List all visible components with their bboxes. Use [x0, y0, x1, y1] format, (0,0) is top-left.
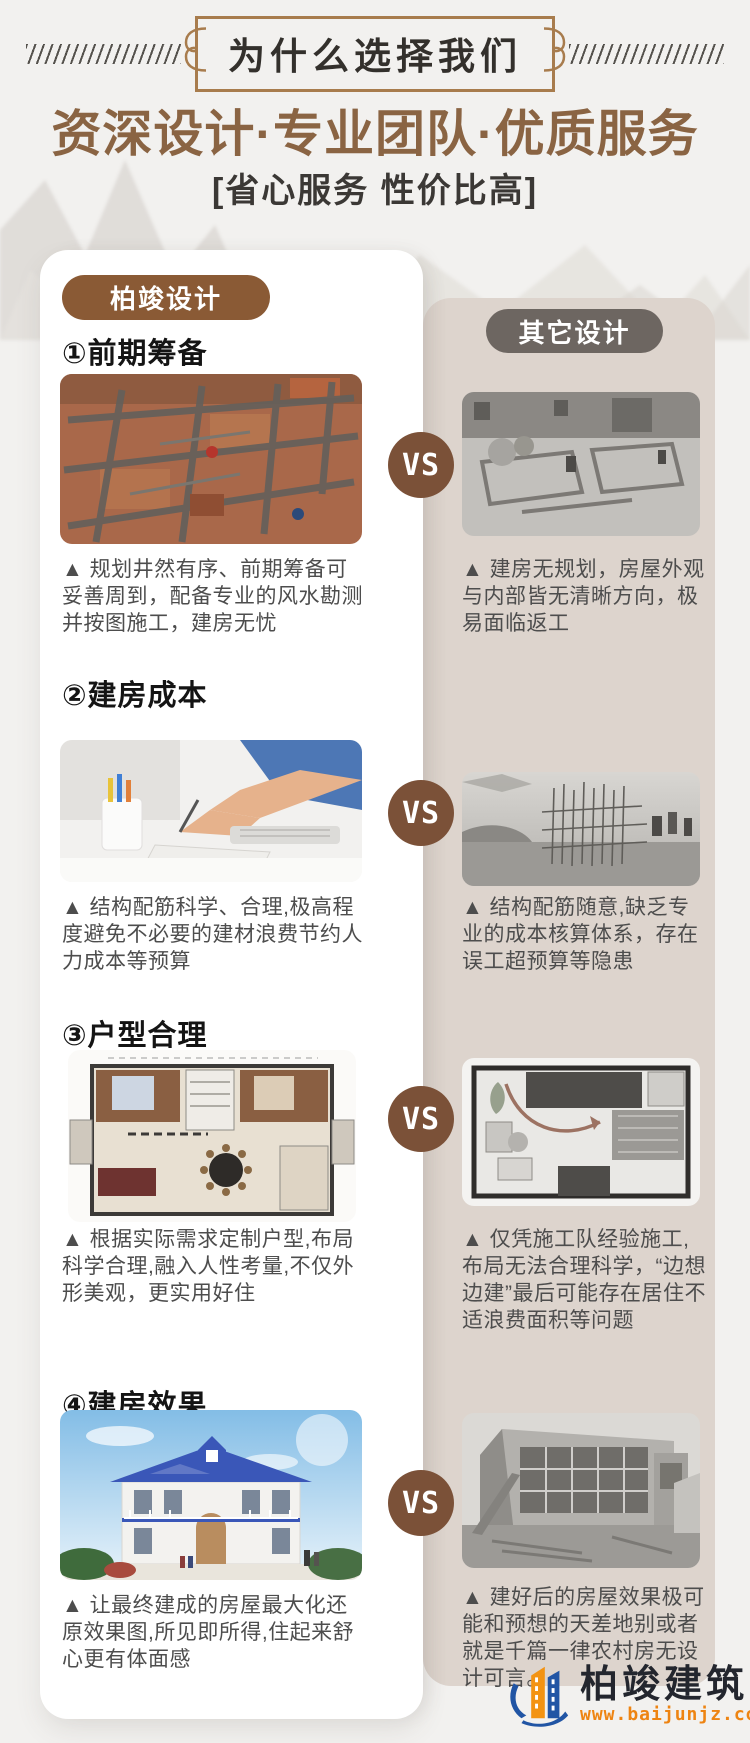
photo-random-rebar-site	[462, 772, 700, 886]
cloud-scroll-ornament-right	[542, 22, 568, 87]
vs-badge-4: VS	[388, 1470, 454, 1536]
hatch-lines-left	[26, 44, 181, 64]
photo-plain-rural-house	[462, 1413, 700, 1568]
promo-page: { "header": { "badge_title": "为什么选择我们", …	[0, 0, 750, 1743]
caption-right-2: ▲ 结构配筋随意,缺乏专业的成本核算体系，存在误工超预算等隐患	[462, 894, 706, 975]
section-heading-3: ③户型合理	[62, 1012, 208, 1054]
vs-badge-2: VS	[388, 780, 454, 846]
vs-label: VS	[402, 1102, 440, 1137]
badge-title: 为什么选择我们	[228, 36, 522, 77]
section-heading-2: ②建房成本	[62, 672, 208, 714]
caption-left-4: ▲ 让最终建成的房屋最大化还原效果图,所见即所得,住起来舒心更有体面感	[62, 1592, 366, 1673]
cloud-scroll-ornament-left	[182, 22, 208, 87]
photo-designer-budgeting	[60, 740, 362, 882]
photo-finished-villa	[60, 1410, 362, 1580]
footer-logo: 柏竣建筑 www.baijunjz.com	[502, 1656, 750, 1733]
caption-right-1: ▲ 建房无规划，房屋外观与内部皆无清晰方向，极易面临返工	[462, 556, 706, 637]
vs-label: VS	[402, 796, 440, 831]
building-swoosh-logo-icon	[502, 1656, 574, 1733]
caption-left-2: ▲ 结构配筋科学、合理,极高程度避免不必要的建材浪费节约人力成本等预算	[62, 894, 366, 975]
brand-pill: 柏竣设计	[62, 275, 270, 320]
caption-left-1: ▲ 规划井然有序、前期筹备可妥善周到，配备专业的风水勘测并按图施工，建房无忧	[62, 556, 366, 637]
badge-frame: 为什么选择我们	[195, 16, 555, 92]
footer-brand-text: 柏竣建筑 www.baijunjz.com	[580, 1665, 750, 1725]
header-badge: 为什么选择我们	[0, 16, 750, 92]
hatch-lines-right	[569, 44, 724, 64]
vs-label: VS	[402, 448, 440, 483]
brand-name: 柏竣建筑	[580, 1665, 750, 1705]
photo-unplanned-foundation	[462, 392, 700, 536]
brand-url: www.baijunjz.com	[580, 1705, 750, 1725]
other-pill: 其它设计	[486, 309, 663, 353]
vs-badge-1: VS	[388, 432, 454, 498]
caption-left-3: ▲ 根据实际需求定制户型,布局科学合理,融入人性考量,不仅外形美观，更实用好住	[62, 1226, 366, 1307]
sub-title: [省心服务 性价比高]	[0, 163, 750, 212]
photo-improvised-floor-plan	[462, 1058, 700, 1206]
caption-right-3: ▲ 仅凭施工队经验施工,布局无法合理科学，“边想边建”最后可能存在居住不适浪费面…	[462, 1226, 706, 1334]
photo-custom-floor-plan	[68, 1050, 356, 1222]
vs-label: VS	[402, 1486, 440, 1521]
vs-badge-3: VS	[388, 1086, 454, 1152]
photo-planned-foundation	[60, 374, 362, 544]
main-title: 资深设计·专业团队·优质服务	[0, 94, 750, 166]
section-heading-1: ①前期筹备	[62, 330, 208, 372]
